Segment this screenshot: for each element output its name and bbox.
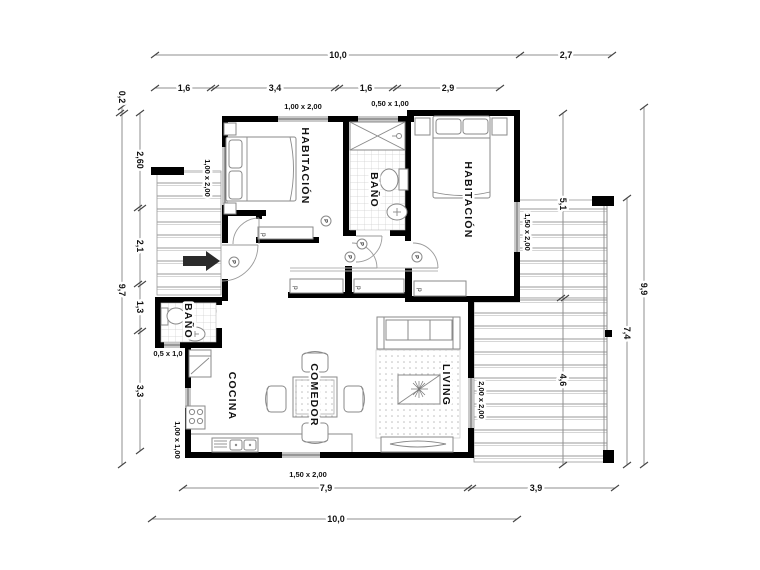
dim-label: 9,7 [117,284,127,297]
window-living-right [468,378,474,428]
window-bed1-top [278,116,328,122]
deck-post [605,330,612,337]
svg-text:p: p [416,288,423,292]
dim-label: 5,1 [558,198,568,211]
room-label-bathroom2: BAÑO [182,303,195,339]
dim-label: 3,9 [530,483,543,493]
window-label: 2,00 x 2,00 [477,381,486,419]
dim-label: 3,3 [135,385,145,398]
room-label-bedroom2: HABITACIÓN [462,161,475,238]
room-label-kitchen: COCINA [226,372,238,421]
sink-icon [387,204,407,220]
svg-text:P: P [413,255,419,259]
door-tag: P [412,252,422,262]
dim-label: 1,6 [178,83,191,93]
door-tag: P [357,239,367,249]
dim-label: 10,0 [329,50,347,60]
dim-label: 7,4 [622,327,632,340]
svg-text:p: p [292,286,299,290]
toilet-icon [380,169,408,191]
closet-c: p [414,281,466,296]
floor-plan-drawing: p p p p P P P P P P [0,0,760,570]
door-tag: P [229,257,239,267]
bed-icon [226,137,296,201]
coffee-table-icon [398,375,440,404]
dim-label: 1,3 [135,301,145,314]
deck-post [603,450,614,463]
sofa-icon [377,317,460,349]
window-label: 1,00 x 2,00 [284,102,322,111]
dim-label: 9,9 [639,283,649,296]
room-label-dining: COMEDOR [308,363,320,426]
window-label: 1,00 x 2,00 [203,159,212,197]
toilet-icon [161,308,185,325]
dim-label: 3,4 [269,83,282,93]
room-label-bedroom1: HABITACIÓN [299,127,312,204]
closet-b: p [354,279,404,293]
door-tag: P [321,216,331,226]
svg-text:p: p [260,233,267,237]
dim-label: 10,0 [327,514,345,524]
dim-label: 0,2 [117,91,127,104]
nightstand-icon [224,123,236,135]
dim-label: 4,6 [558,374,568,387]
stove-icon [186,406,205,429]
dim-label: 7,9 [320,483,333,493]
door-tag: P [345,252,355,262]
window-bath1-top [358,116,398,122]
dim-label: 2,60 [135,151,145,169]
tv-unit-icon [381,437,453,452]
nightstand-icon [492,118,507,135]
svg-text:P: P [346,255,352,259]
svg-text:P: P [230,260,236,264]
svg-text:P: P [358,242,364,246]
dim-label: 2,9 [442,83,455,93]
dim-label: 2,7 [560,50,573,60]
room-label-living: LIVING [440,364,452,406]
window-label: 1,50 x 2,00 [523,213,532,251]
window-kitchen-left [185,388,191,408]
svg-text:p: p [355,286,362,290]
nightstand-icon [224,203,236,214]
dim-label: 2,1 [135,240,145,253]
window-label: 0,50 x 1,00 [371,99,409,108]
window-kitchen-bottom [282,452,320,458]
bed-icon [433,116,490,198]
chair-icon [344,386,365,412]
window-label: 1,00 x 1,00 [173,421,182,459]
chair-icon [266,386,287,412]
kitchen-sink-icon [212,438,258,452]
floor-plan: p p p p P P P P P P [0,0,760,570]
window-label: 0,5 x 1,0 [153,349,182,358]
window-label: 1,50 x 2,00 [289,470,327,479]
shower-icon [350,122,405,150]
room-label-bathroom1: BAÑO [368,172,381,208]
deck-post [592,196,614,206]
dim-label: 1,6 [360,83,373,93]
nightstand-icon [415,118,430,135]
window-bed2-right [514,202,520,252]
closet-a: p [290,279,343,293]
bedroom1-furniture [224,123,296,214]
svg-text:P: P [322,219,328,223]
window-bath2 [164,342,180,348]
closet-hall-north: p [258,227,313,239]
fridge-icon [189,350,211,377]
